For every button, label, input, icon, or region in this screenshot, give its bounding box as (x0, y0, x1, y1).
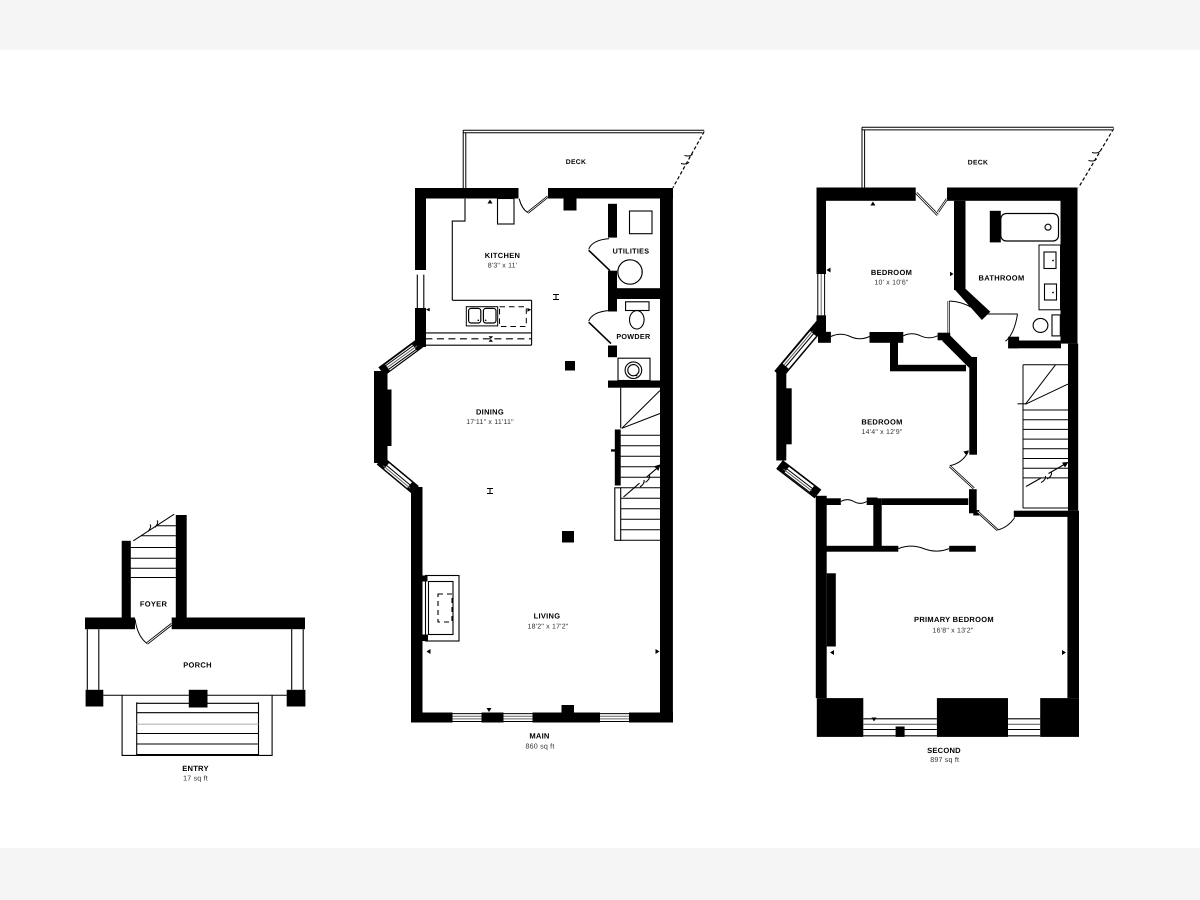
svg-text:LIVING: LIVING (534, 612, 561, 621)
svg-text:ENTRY: ENTRY (182, 764, 208, 773)
svg-text:DECK: DECK (566, 159, 586, 166)
svg-text:17'11" x 11'11": 17'11" x 11'11" (466, 419, 514, 426)
svg-text:860 sq ft: 860 sq ft (525, 743, 554, 751)
svg-text:PRIMARY BEDROOM: PRIMARY BEDROOM (914, 615, 994, 624)
svg-text:BEDROOM: BEDROOM (871, 268, 912, 277)
svg-text:SECOND: SECOND (927, 746, 961, 755)
svg-text:8'3" x 11': 8'3" x 11' (488, 263, 518, 270)
svg-text:KITCHEN: KITCHEN (485, 251, 520, 260)
svg-text:18'2" x 17'2": 18'2" x 17'2" (528, 624, 569, 631)
svg-text:897 sq ft: 897 sq ft (930, 756, 959, 764)
svg-text:16'8" x 13'2": 16'8" x 13'2" (933, 628, 974, 635)
svg-text:PORCH: PORCH (183, 661, 212, 670)
svg-text:FOYER: FOYER (140, 600, 168, 609)
svg-text:DINING: DINING (476, 408, 504, 417)
svg-text:14'4" x 12'9": 14'4" x 12'9" (862, 429, 903, 436)
svg-text:POWDER: POWDER (616, 332, 651, 341)
svg-text:17 sq ft: 17 sq ft (183, 775, 208, 783)
svg-text:10' x 10'6": 10' x 10'6" (874, 280, 909, 287)
svg-text:MAIN: MAIN (529, 732, 549, 741)
svg-text:DECK: DECK (968, 160, 988, 167)
svg-text:UTILITIES: UTILITIES (613, 246, 650, 255)
svg-text:BEDROOM: BEDROOM (861, 417, 902, 426)
svg-text:BATHROOM: BATHROOM (978, 274, 1024, 283)
